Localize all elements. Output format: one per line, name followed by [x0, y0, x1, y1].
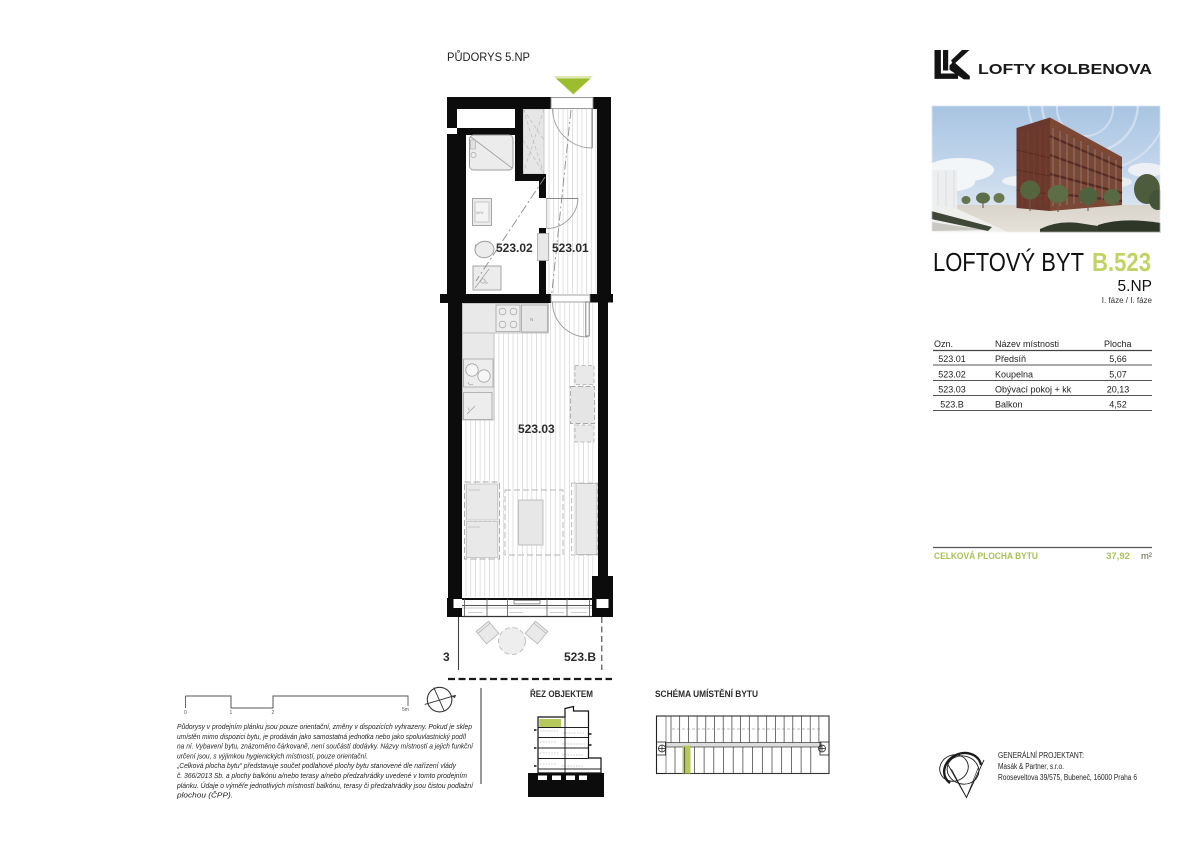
svg-text:523.03: 523.03 [518, 422, 555, 436]
svg-text:5,66: 5,66 [1109, 354, 1127, 364]
svg-text:523.02: 523.02 [938, 370, 966, 380]
svg-text:20,13: 20,13 [1107, 385, 1130, 395]
svg-text:LOFTY KOLBENOVA: LOFTY KOLBENOVA [978, 61, 1152, 78]
svg-text:ŘEZ OBJEKTEM: ŘEZ OBJEKTEM [530, 688, 593, 699]
svg-text:GENERÁLNÍ PROJEKTANT:: GENERÁLNÍ PROJEKTANT: [998, 751, 1084, 760]
svg-text:Půdorysy v prodejním plánku js: Půdorysy v prodejním plánku jsou pouze o… [177, 722, 472, 731]
svg-text:č. 366/2013 Sb. a plochy balkó: č. 366/2013 Sb. a plochy balkónu a/nebo … [177, 771, 467, 780]
svg-text:Masák & Partner, s.r.o.: Masák & Partner, s.r.o. [998, 762, 1064, 771]
svg-text:523.03: 523.03 [938, 385, 966, 395]
svg-text:Koupelna: Koupelna [995, 370, 1033, 380]
svg-text:2: 2 [272, 710, 275, 716]
svg-text:5.NP: 5.NP [1118, 278, 1152, 295]
svg-text:37,92: 37,92 [1106, 551, 1130, 562]
svg-text:určení jsou, s výjimkou hygien: určení jsou, s výjimkou hygienických mís… [177, 751, 368, 760]
svg-text:„Celková plocha bytu“ představ: „Celková plocha bytu“ představuje součet… [176, 761, 457, 770]
svg-text:PŮDORYS 5.NP: PŮDORYS 5.NP [447, 51, 530, 64]
svg-text:plánku. Údaje o výměře jednotl: plánku. Údaje o výměře jednotlivých míst… [176, 781, 474, 790]
svg-text:CELKOVÁ PLOCHA BYTU: CELKOVÁ PLOCHA BYTU [934, 551, 1038, 562]
svg-text:Obývací pokoj + kk: Obývací pokoj + kk [995, 385, 1072, 395]
svg-text:3: 3 [443, 650, 450, 664]
svg-text:523.B: 523.B [940, 400, 964, 410]
svg-text:na ní. Vybavení bytu, znázorně: na ní. Vybavení bytu, znázorněno čárkova… [177, 742, 474, 751]
svg-text:1: 1 [230, 710, 233, 716]
svg-text:5,07: 5,07 [1109, 370, 1127, 380]
svg-text:umístěn mimo dispozici bytu, j: umístěn mimo dispozici bytu, je prodáván… [177, 732, 466, 741]
svg-text:B.523: B.523 [1092, 247, 1151, 277]
svg-text:523.B: 523.B [564, 650, 596, 664]
svg-text:4,52: 4,52 [1109, 400, 1127, 410]
svg-text:SCHÉMA UMÍSTĚNÍ BYTU: SCHÉMA UMÍSTĚNÍ BYTU [655, 688, 758, 699]
svg-text:DKW: DKW [476, 211, 483, 215]
svg-text:Předsíň: Předsíň [995, 354, 1026, 364]
svg-text:5m: 5m [402, 707, 409, 713]
svg-text:m²: m² [1141, 551, 1152, 562]
svg-text:LOFTOVÝ BYT: LOFTOVÝ BYT [933, 247, 1084, 277]
svg-text:523.02: 523.02 [496, 241, 533, 255]
svg-text:I. fáze / I. fáze: I. fáze / I. fáze [1102, 296, 1153, 305]
svg-text:N: N [530, 317, 533, 322]
svg-text:0: 0 [184, 710, 187, 716]
svg-text:Ozn.: Ozn. [934, 339, 953, 349]
svg-text:Plocha: Plocha [1104, 339, 1132, 349]
svg-text:523.01: 523.01 [938, 354, 966, 364]
svg-text:Název místnosti: Název místnosti [995, 339, 1059, 349]
svg-text:plochou (ČPP).: plochou (ČPP). [176, 791, 233, 800]
svg-text:Rooseveltova 39/575, Bubeneč,: Rooseveltova 39/575, Bubeneč, 16000 Prah… [998, 773, 1137, 782]
svg-text:Balkon: Balkon [995, 400, 1023, 410]
svg-text:523.01: 523.01 [552, 241, 589, 255]
